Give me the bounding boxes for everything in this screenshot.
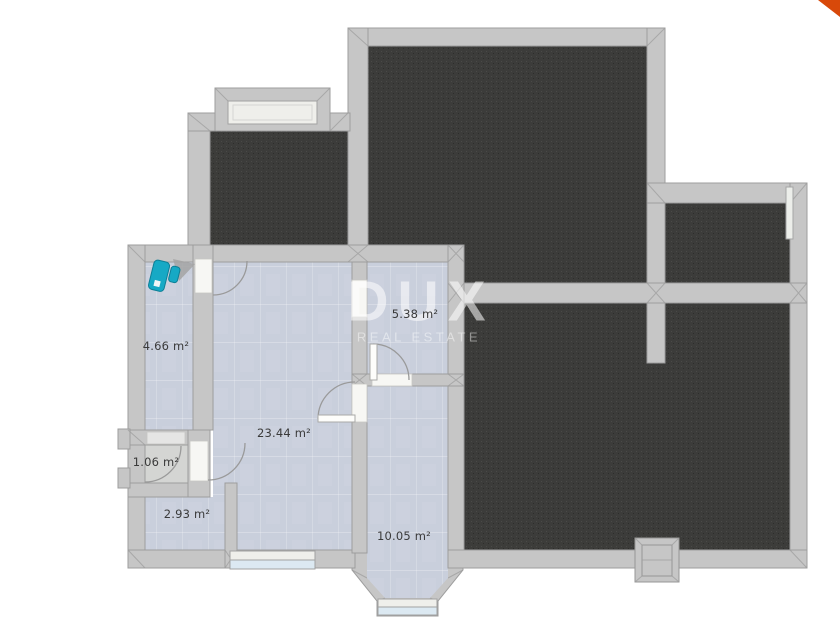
floor-top-large-room [368,46,647,245]
watermark-tagline: REAL ESTATE [357,331,481,344]
room-label-4-66: 4.66 m² [143,339,189,353]
pilaster-upper [118,429,130,449]
room-label-5-38: 5.38 m² [392,307,438,321]
entry-steps [635,538,679,582]
door-leaf [318,415,355,422]
room-label-1-06: 1.06 m² [133,455,179,469]
wall-niche [786,187,793,239]
watermark-brand: DUX [347,274,494,331]
floor-plan-canvas: DUX REAL ESTATE 4.66 m² 23.44 m² 5.38 m²… [0,0,840,627]
room-label-23-44: 23.44 m² [257,426,311,440]
pilaster-lower [118,468,130,488]
floor-bottom-right-room [462,303,790,550]
bottom-window-23-44 [230,551,315,569]
bay-window-10-05 [378,599,437,615]
corner-ribbon [818,0,840,17]
room-label-10-05: 10.05 m² [377,529,431,543]
room-label-2-93: 2.93 m² [164,507,210,521]
floor-right-room [665,203,790,283]
top-bay-window [228,101,317,124]
floor-top-left-room [210,131,348,245]
door-leaf [370,344,377,380]
floor-room-10-05 [367,386,448,598]
floor-room-2-93 [145,497,225,550]
